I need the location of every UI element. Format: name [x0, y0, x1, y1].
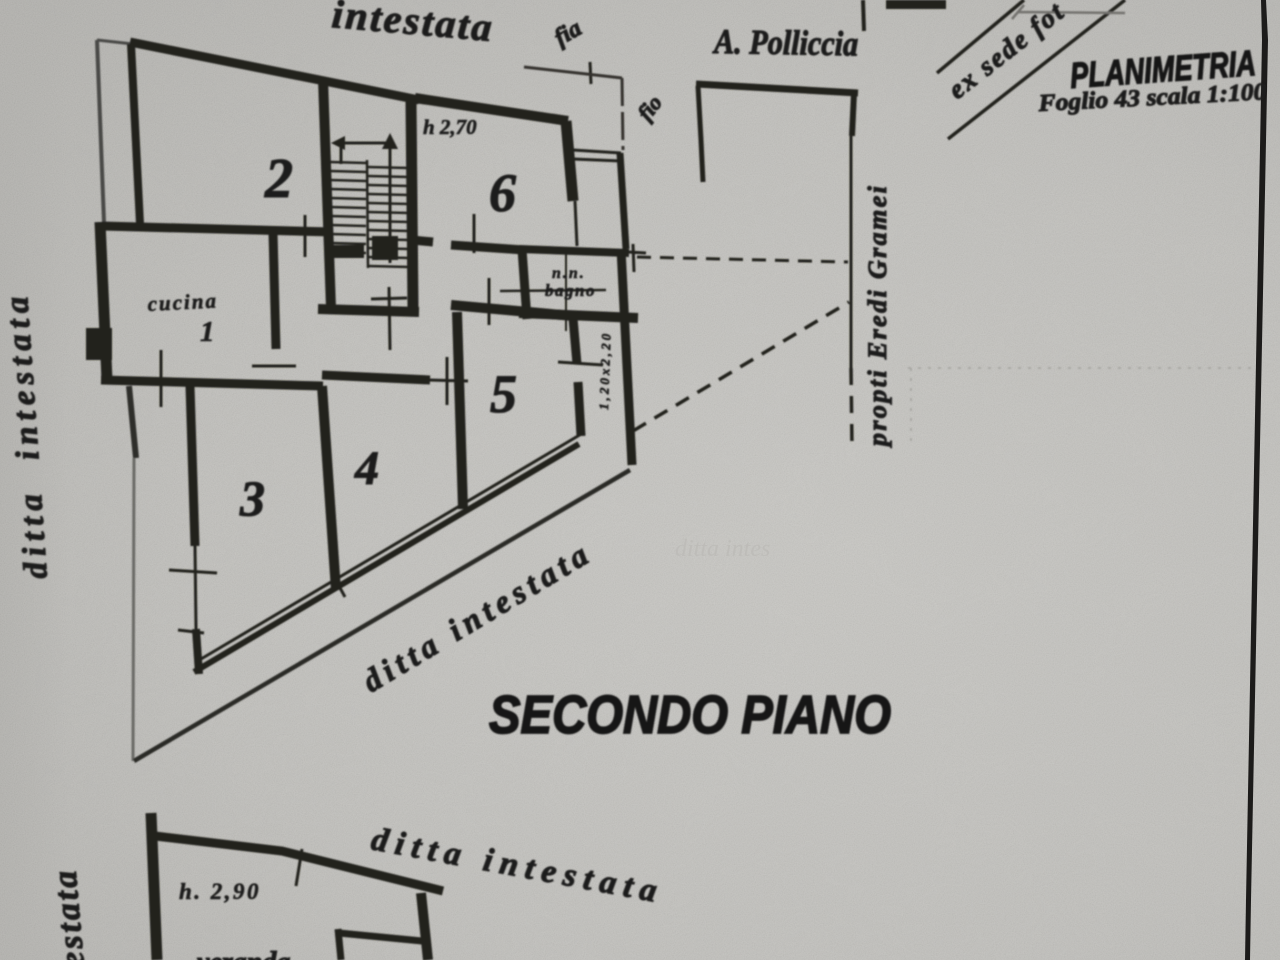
- svg-text:1: 1: [200, 316, 215, 348]
- svg-text:2: 2: [264, 148, 293, 210]
- svg-text:h 2,70: h 2,70: [423, 115, 477, 139]
- svg-text:5: 5: [490, 364, 517, 424]
- svg-text:ditta intes: ditta intes: [675, 536, 770, 562]
- svg-text:1,20x2,20: 1,20x2,20: [596, 331, 614, 410]
- svg-text:n.n.: n.n.: [552, 265, 586, 282]
- svg-text:4: 4: [354, 442, 379, 495]
- svg-text:bagno: bagno: [545, 281, 596, 300]
- svg-text:A. Polliccia: A. Polliccia: [712, 22, 858, 64]
- svg-text:6: 6: [489, 163, 516, 223]
- svg-text:3: 3: [239, 470, 265, 526]
- svg-text:propti Eredi Gramei: propti Eredi Gramei: [863, 184, 892, 448]
- svg-text:veranda: veranda: [197, 947, 290, 960]
- svg-text:SECONDO PIANO: SECONDO PIANO: [489, 685, 891, 745]
- svg-text:cucina: cucina: [147, 288, 219, 316]
- svg-text:h. 2,90: h. 2,90: [179, 879, 261, 904]
